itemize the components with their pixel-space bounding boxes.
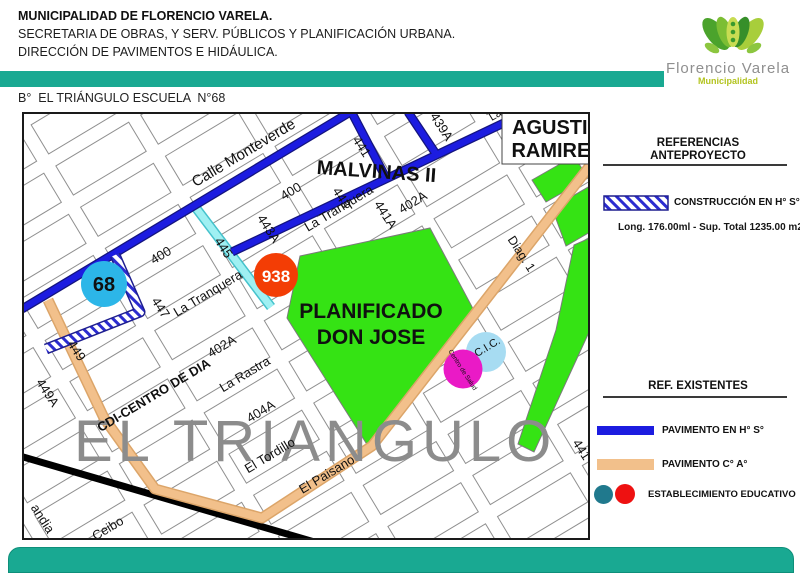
leaf-logo-icon: [655, 2, 800, 60]
municipality-logo: Florencio Varela Municipalidad: [655, 2, 800, 88]
map-label-planificado: PLANIFICADO: [299, 300, 443, 323]
construction-label: CONSTRUCCIÓN EN H° S°: [674, 197, 800, 208]
legend-anteproyecto-title-line1: REFERENCIAS: [600, 137, 796, 150]
construction-detail: Long. 176.00ml - Sup. Total 1235.00 m2: [618, 222, 800, 233]
city-map: Calle MonteverdeMALVINAS IIAGUSTINRAMIRE…: [22, 112, 590, 540]
legend-existentes-underline: [603, 396, 787, 398]
org-subtitle-2: DIRECCIÓN DE PAVIMENTOS E HIDÁULICA.: [18, 43, 455, 61]
logo-subtitle: Municipalidad: [655, 76, 800, 86]
pavimento-ca-label: PAVIMENTO C° A°: [662, 459, 747, 470]
establecimiento-label: ESTABLECIMIENTO EDUCATIVO: [648, 489, 796, 500]
header: MUNICIPALIDAD DE FLORENCIO VARELA. SECRE…: [18, 7, 455, 61]
map-label-don-jose: DON JOSE: [317, 326, 426, 349]
plan-title: B° EL TRIÁNGULO ESCUELA N°68: [18, 91, 225, 105]
logo-title: Florencio Varela: [655, 60, 800, 77]
legend-anteproyecto-title: REFERENCIAS ANTEPROYECTO: [600, 137, 796, 163]
educational-circle-red: [615, 484, 635, 504]
legend-anteproyecto-underline: [603, 164, 787, 166]
educational-circle-blue: [594, 485, 613, 504]
construction-swatch: [603, 195, 669, 211]
map-label-ramirez: RAMIREZ: [511, 140, 590, 162]
pavimento-hs-swatch: [597, 426, 654, 435]
legend-anteproyecto-title-line2: ANTEPROYECTO: [600, 150, 796, 163]
org-subtitle-1: SECRETARIA DE OBRAS, Y SERV. PÚBLICOS Y …: [18, 25, 455, 43]
org-title: MUNICIPALIDAD DE FLORENCIO VARELA.: [18, 7, 455, 25]
legend-existentes-title: REF. EXISTENTES: [600, 380, 796, 393]
header-accent-bar: [0, 71, 664, 87]
map-label-68: 68: [93, 274, 115, 296]
footer-accent-bar: [8, 547, 794, 573]
map-label-938: 938: [262, 267, 290, 286]
map-label-agustin: AGUSTIN: [512, 117, 590, 139]
map-area: Calle MonteverdeMALVINAS IIAGUSTINRAMIRE…: [22, 112, 590, 540]
pavimento-hs-label: PAVIMENTO EN H° S°: [662, 425, 764, 436]
pavimento-ca-swatch: [597, 459, 654, 470]
map-label-el-triangulo: EL TRIANGULO: [74, 409, 556, 474]
